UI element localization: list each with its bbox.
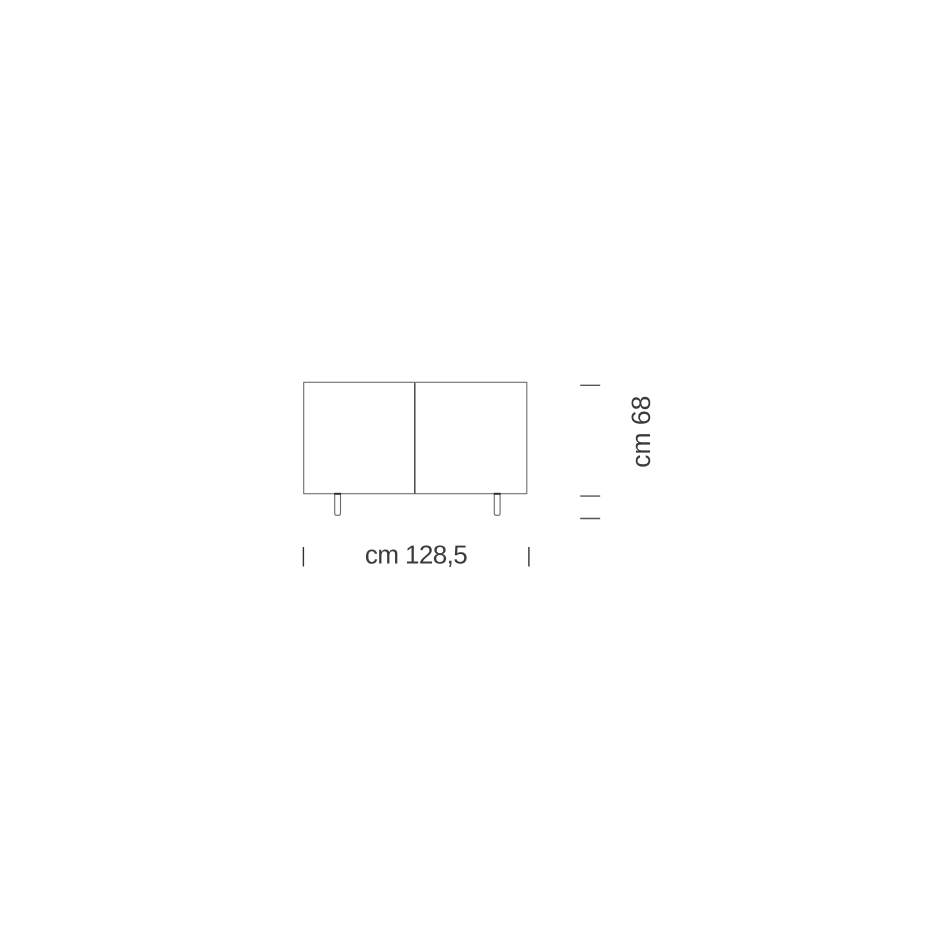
svg-text:cm 68: cm 68 <box>626 396 656 468</box>
svg-text:cm 128,5: cm 128,5 <box>365 540 467 570</box>
